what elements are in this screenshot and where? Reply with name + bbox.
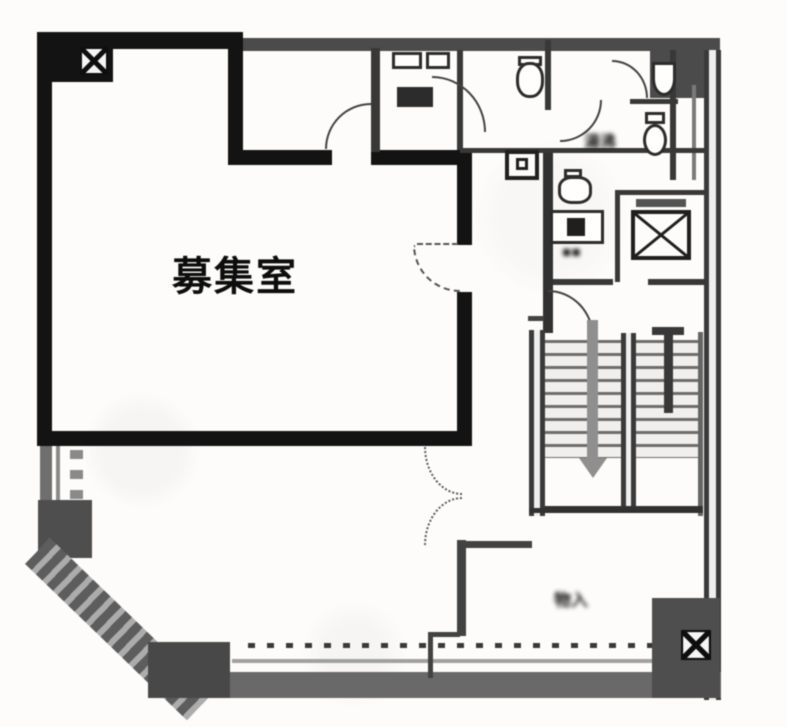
- stair-wall: [698, 332, 703, 516]
- door-arc: [325, 103, 371, 149]
- toilet-fixture: [558, 176, 592, 204]
- wall-corner-block: [148, 642, 230, 698]
- toilet-fixture: [516, 62, 544, 98]
- partition-wall: [615, 190, 706, 195]
- stair-down-arrow-head: [579, 458, 607, 478]
- stair-up-arrow-bar: [652, 327, 684, 335]
- partition-wall: [648, 279, 706, 285]
- column-marker-icon: [80, 47, 108, 75]
- partition-wall: [615, 190, 620, 282]
- wall-segment: [228, 150, 332, 165]
- door-arc: [424, 447, 462, 495]
- partition-wall: [462, 541, 532, 548]
- wall-segment: [457, 292, 472, 446]
- wall-segment: [37, 32, 52, 446]
- stair-wall: [529, 506, 703, 513]
- door-arc: [432, 76, 486, 132]
- stair-up-arrow: [664, 335, 673, 413]
- partition-wall: [457, 540, 466, 636]
- wall-segment: [37, 431, 472, 446]
- door-leaf: [417, 243, 458, 245]
- balcony-dashed-line: [248, 643, 672, 648]
- partition-wall: [428, 632, 433, 678]
- wall-segment: [457, 165, 472, 245]
- counter-fixture: [397, 87, 433, 107]
- door-arc: [413, 245, 460, 292]
- partition-wall: [545, 40, 551, 110]
- partition-wall: [548, 148, 706, 153]
- door-arc: [424, 497, 462, 545]
- elevator-door: [636, 199, 686, 207]
- floor-plan-drawing: 募集室 湯沸 ▪▪: [0, 0, 787, 727]
- wall-segment: [222, 672, 721, 698]
- pipe-shaft-inner: [516, 158, 528, 170]
- illegible-label: 湯沸: [584, 128, 616, 152]
- balcony-inner-line: [232, 659, 705, 663]
- wall-segment: [529, 446, 545, 508]
- sink-basin: [567, 218, 585, 236]
- column-marker-icon: [681, 630, 711, 660]
- illegible-label: 物入: [554, 586, 588, 611]
- urinal-fixture: [652, 62, 676, 96]
- wall-segment: [228, 32, 243, 164]
- duct-line: [692, 85, 696, 180]
- stair-stringer: [621, 333, 636, 513]
- partition-wall: [553, 279, 613, 285]
- sink-fixture: [426, 52, 450, 69]
- partition-wall: [371, 48, 380, 152]
- toilet-tank: [645, 112, 665, 124]
- illegible-marks: ▪▪: [562, 244, 581, 260]
- wall-segment: [371, 150, 472, 165]
- floor-plan: 募集室 湯沸 ▪▪: [0, 0, 787, 727]
- toilet-fixture: [643, 124, 667, 156]
- wall-tick: [528, 316, 544, 321]
- stair-down-arrow: [587, 320, 598, 460]
- stair-steps: [545, 340, 621, 458]
- elevator-icon: [631, 210, 691, 260]
- vacant-room-label: 募集室: [172, 244, 298, 302]
- wall-segment: [237, 38, 720, 51]
- door-arc: [612, 60, 648, 98]
- sink-fixture: [392, 52, 422, 69]
